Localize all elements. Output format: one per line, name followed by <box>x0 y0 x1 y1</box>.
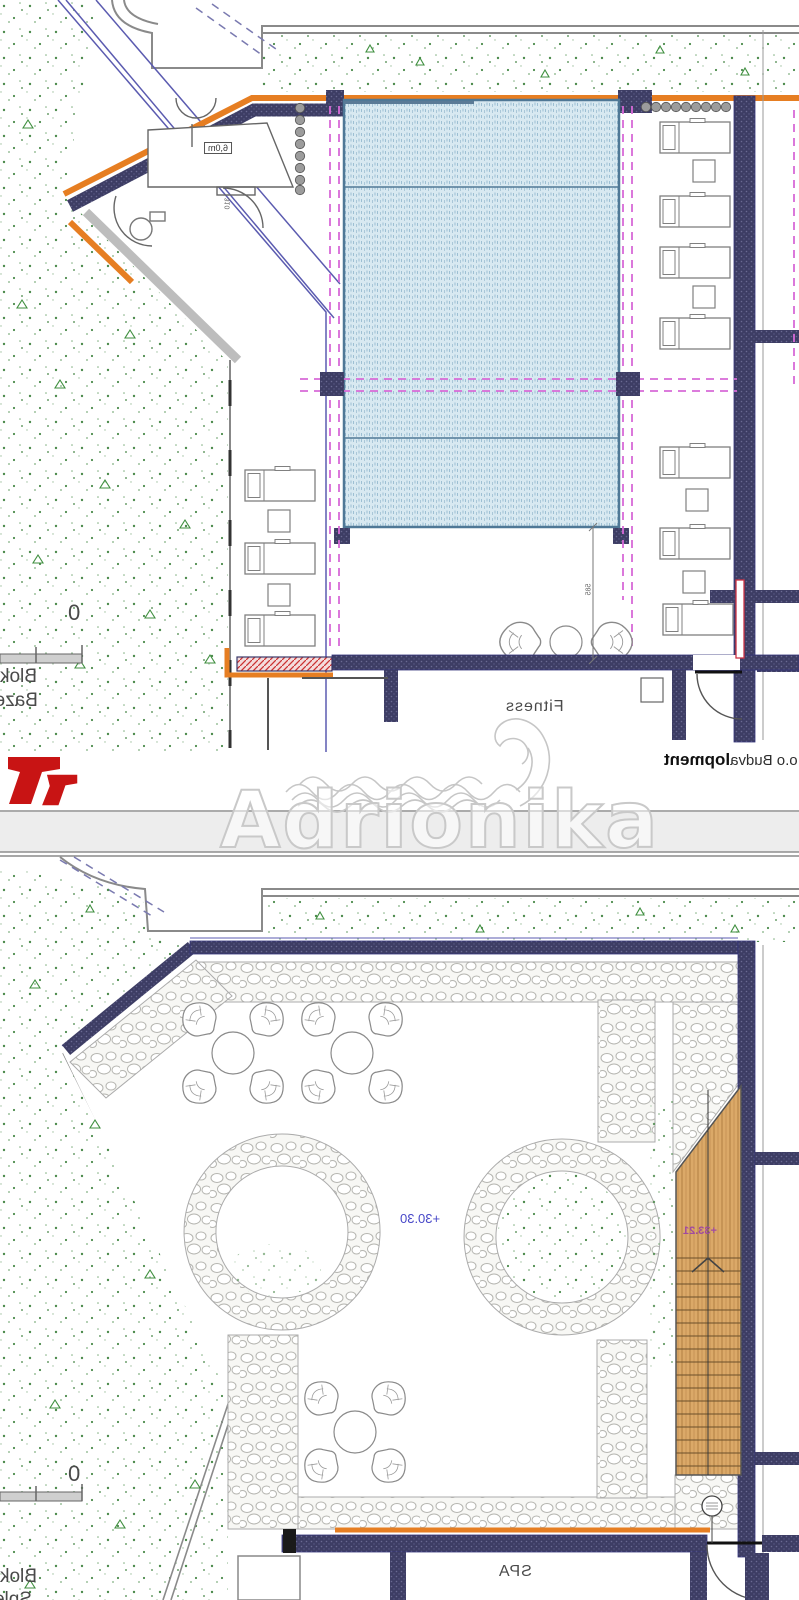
label-blok-bottom: Blok <box>0 1566 37 1588</box>
wall-stub <box>710 590 799 603</box>
credit-developer: lopment <box>664 750 730 769</box>
room-label-fitness: Fitness <box>505 698 564 716</box>
credit-line: D.o.o Budvalopment <box>664 750 799 770</box>
dimension-310: 310 <box>222 200 234 207</box>
label-bazen-top: Bazen <box>0 690 38 712</box>
grass-circle <box>498 1173 626 1301</box>
sun-loungers-left <box>245 467 315 647</box>
credit-company: D.o.o Budva <box>730 752 799 769</box>
plan-canvas: 6,0m 310 585 Fitness SPA Blok Bazen Blok… <box>0 0 799 1600</box>
grass-patch <box>229 1244 321 1296</box>
grass-top-strip <box>262 33 799 92</box>
dimension-585: 585 <box>583 586 595 593</box>
wall-block <box>326 90 344 113</box>
level-label-deck: +33.21 <box>683 1225 717 1237</box>
label-sple-bottom: Sple <box>0 1589 32 1600</box>
room-label-spa: SPA <box>498 1563 532 1581</box>
company-logo-icon <box>8 757 78 806</box>
scale-zero-top: 0 <box>68 600 80 626</box>
top-plan <box>0 0 799 756</box>
watermark-text: Adrionika <box>220 776 660 866</box>
grass-top-strip-bottom <box>268 898 799 942</box>
joint-block <box>320 372 344 396</box>
sun-loungers-right <box>660 119 733 636</box>
dimension-6m: 6,0m <box>204 138 232 156</box>
pool <box>334 100 629 544</box>
scale-zero-bottom: 0 <box>68 1461 80 1487</box>
label-blok-top: Blok <box>0 666 37 688</box>
joint-block <box>616 372 640 396</box>
grass-strip-deck <box>648 1100 675 1368</box>
bottom-plan <box>0 856 799 1600</box>
level-label-plaza: +30.30 <box>400 1211 440 1226</box>
wall-stub <box>754 330 799 343</box>
